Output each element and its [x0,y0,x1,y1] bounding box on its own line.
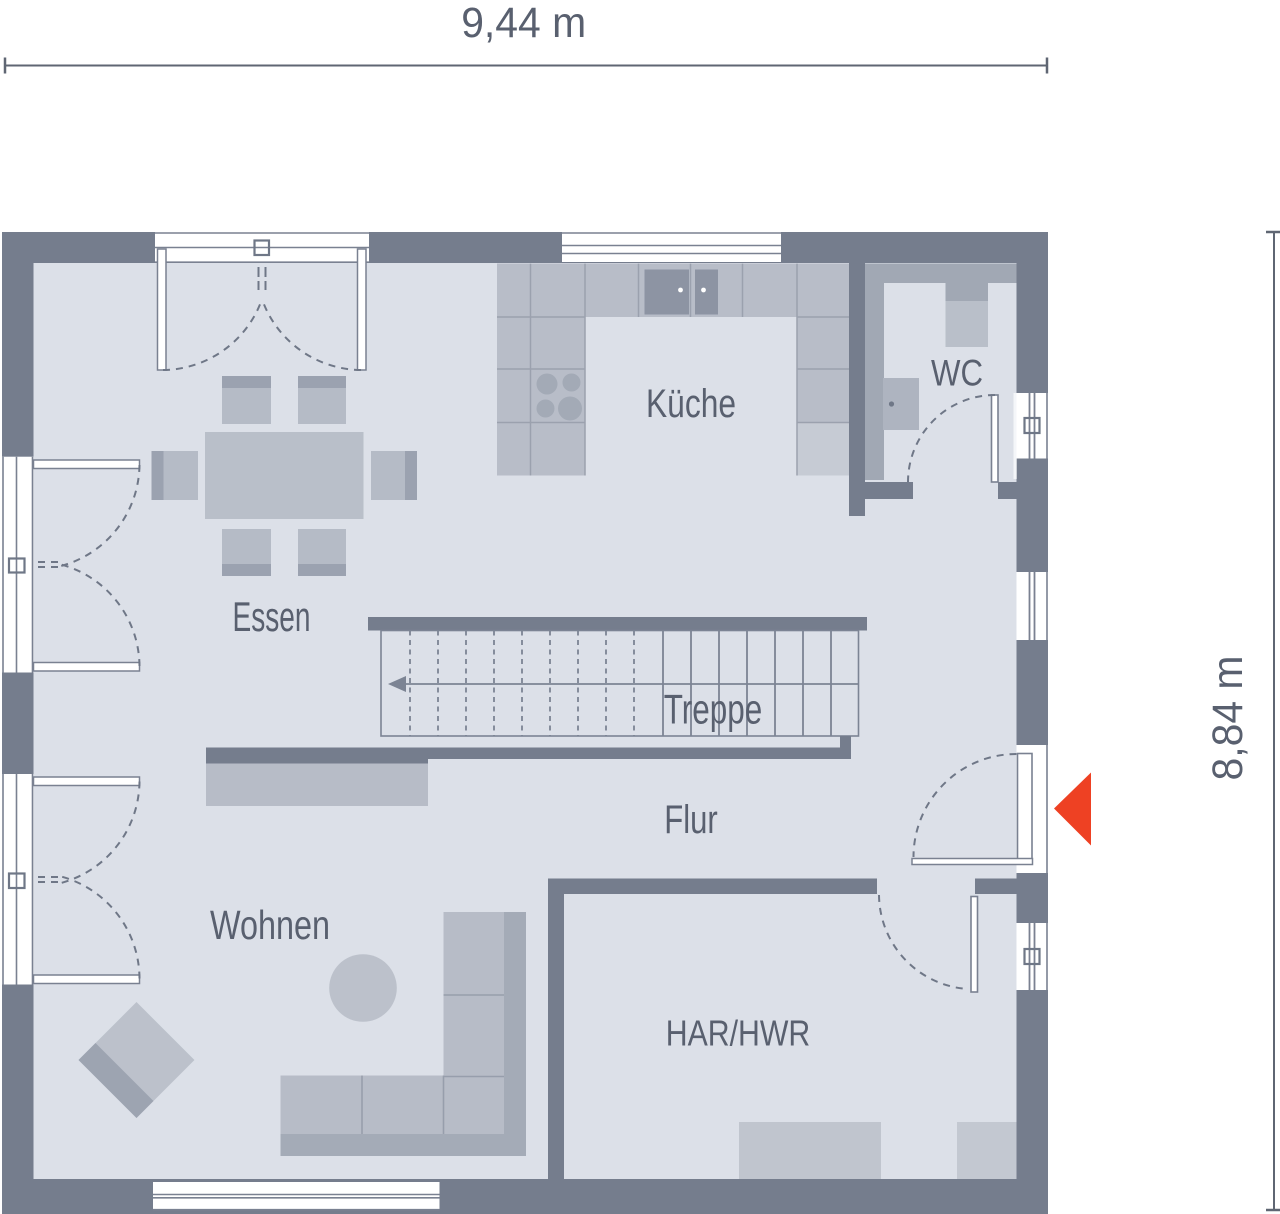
svg-text:Küche: Küche [646,382,736,426]
svg-text:HAR/HWR: HAR/HWR [666,1013,811,1054]
svg-text:Essen: Essen [233,593,311,640]
svg-text:9,44 m: 9,44 m [461,0,586,47]
svg-text:WC: WC [931,353,983,394]
svg-text:Wohnen: Wohnen [210,902,330,948]
svg-text:8,84 m: 8,84 m [1205,656,1252,781]
svg-text:Flur: Flur [664,798,718,842]
svg-text:Treppe: Treppe [664,686,763,733]
